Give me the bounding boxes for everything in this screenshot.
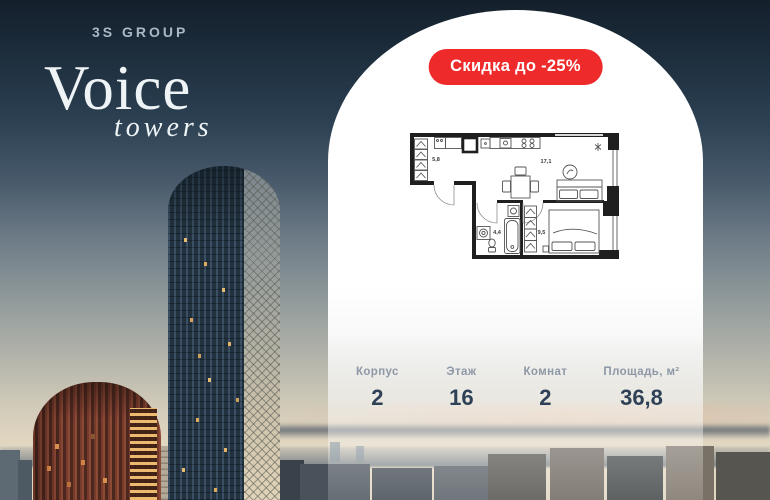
red-building-lit-facade (130, 408, 157, 500)
stat-rooms: Комнат 2 (519, 366, 571, 411)
stat-label: Площадь, м² (603, 366, 679, 378)
floor-plan: 5,8 17,1 4,4 9,5 (407, 130, 625, 270)
skyline-building (18, 460, 32, 500)
room-area-bathroom: 4,4 (493, 230, 502, 236)
stat-value: 16 (435, 385, 487, 411)
tower-glass-facade (168, 166, 244, 500)
discount-badge[interactable]: Скидка до -25% (428, 49, 603, 85)
room-area-bedroom: 9,5 (537, 230, 545, 236)
plan-walls (410, 133, 619, 259)
stat-value: 36,8 (603, 385, 679, 411)
stat-label: Корпус (351, 366, 403, 378)
stat-label: Этаж (435, 366, 487, 378)
stat-area: Площадь, м² 36,8 (603, 366, 679, 411)
apartment-stats: Корпус 2 Этаж 16 Комнат 2 Площадь, м² 36… (328, 366, 703, 411)
developer-logo: 3S GROUP (92, 24, 188, 40)
plan-furniture (414, 138, 602, 254)
stat-floor: Этаж 16 (435, 366, 487, 411)
red-arch-building (33, 382, 161, 500)
voice-tower-building (168, 166, 280, 500)
room-area-hallway: 5,8 (432, 157, 440, 163)
skyline-building (0, 450, 20, 500)
project-logo-sub: towers (114, 112, 213, 144)
apartment-card: Скидка до -25% (328, 10, 703, 500)
tower-diagrid-facade (244, 166, 280, 500)
room-area-living: 17,1 (540, 159, 551, 165)
skyline-building (716, 452, 770, 500)
stat-building: Корпус 2 (351, 366, 403, 411)
red-building-lit-windows (33, 382, 37, 387)
stat-value: 2 (519, 385, 571, 411)
stat-label: Комнат (519, 366, 571, 378)
stat-value: 2 (351, 385, 403, 411)
promo-banner: 3S GROUP Voice towers Скидка до -25% (0, 0, 770, 500)
tower-lit-windows (168, 166, 171, 170)
